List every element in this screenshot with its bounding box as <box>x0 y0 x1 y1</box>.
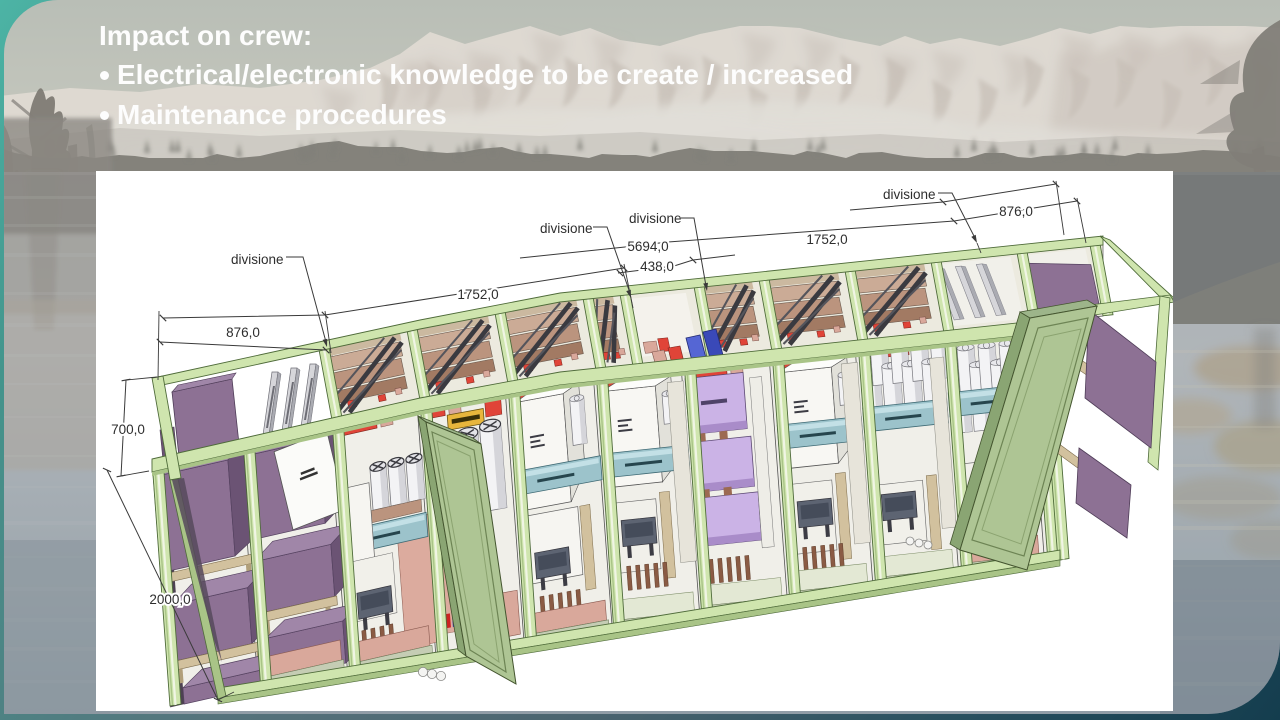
svg-text:876,0: 876,0 <box>999 204 1033 219</box>
svg-text:876,0: 876,0 <box>226 325 260 340</box>
svg-text:700,0: 700,0 <box>111 422 145 437</box>
svg-text:divisione: divisione <box>629 211 682 226</box>
svg-text:divisione: divisione <box>883 187 936 202</box>
svg-text:2000,0: 2000,0 <box>149 592 190 607</box>
svg-text:divisione: divisione <box>231 252 284 267</box>
svg-text:438,0: 438,0 <box>640 259 674 274</box>
svg-text:1752,0: 1752,0 <box>457 287 498 302</box>
svg-text:divisione: divisione <box>540 221 593 236</box>
svg-text:1752,0: 1752,0 <box>806 232 847 247</box>
svg-text:5694,0: 5694,0 <box>627 239 668 254</box>
